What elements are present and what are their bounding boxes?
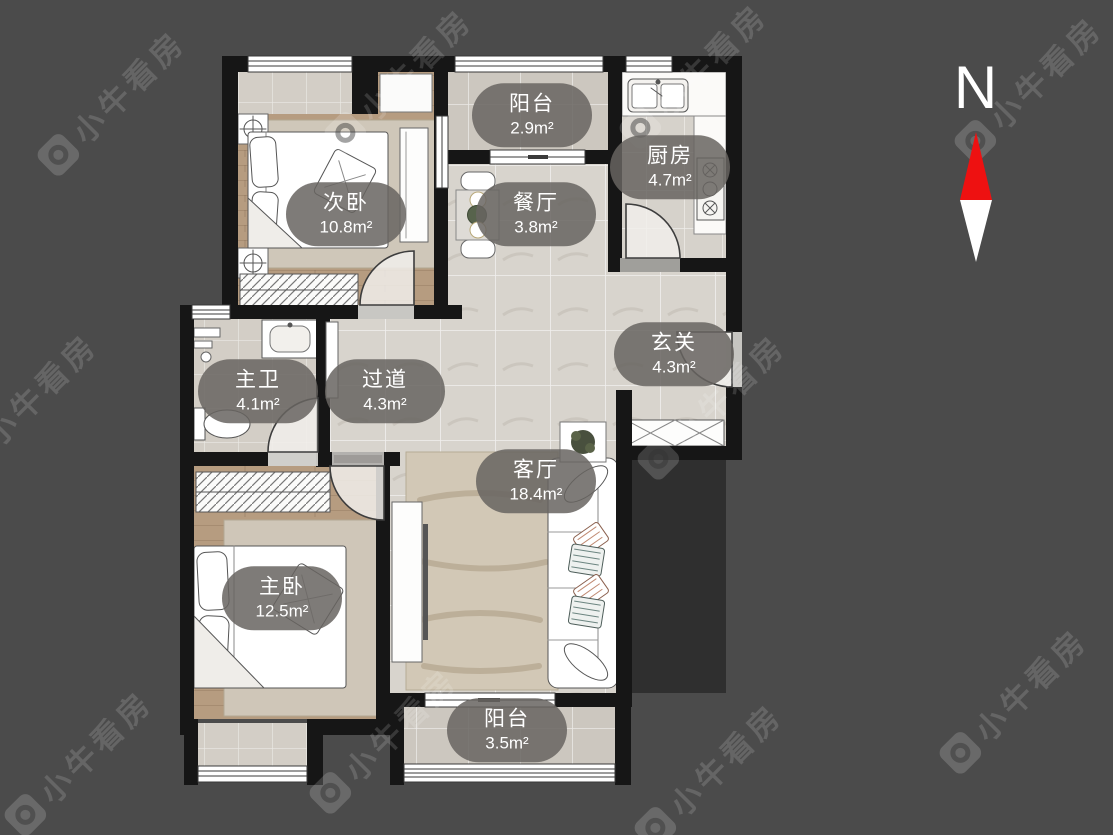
floor-plan-page: 小牛看房 小牛看房 小牛看房 小牛看房 小牛看房 小牛看房 小牛看房 小牛看房 …	[0, 0, 1113, 835]
door-threshold	[620, 258, 680, 272]
desk	[400, 128, 428, 242]
room-area: 4.3m²	[363, 394, 406, 415]
room-area: 3.8m²	[514, 217, 557, 238]
room-area: 4.7m²	[648, 170, 691, 191]
room-area: 4.3m²	[652, 357, 695, 378]
chair	[461, 240, 495, 258]
room-name: 主卫	[235, 367, 281, 393]
room-label-master-bedroom: 主卧 12.5m²	[222, 566, 342, 630]
room-label-entry: 玄关 4.3m²	[614, 322, 734, 386]
cabinet	[380, 74, 432, 112]
room-area: 12.5m²	[256, 601, 309, 622]
room-name: 次卧	[323, 190, 369, 216]
room-area: 3.5m²	[485, 733, 528, 754]
compass-arrow-icon	[958, 130, 994, 264]
room-label-south-balcony: 阳台 3.5m²	[447, 698, 567, 762]
master-bay-floor	[198, 723, 307, 767]
window	[248, 56, 352, 72]
room-name: 客厅	[513, 457, 559, 483]
window	[626, 56, 672, 72]
room-name: 过道	[362, 367, 408, 393]
window	[198, 766, 307, 782]
wardrobe	[240, 274, 358, 306]
room-area: 2.9m²	[510, 118, 553, 139]
wardrobe	[196, 472, 330, 512]
room-label-north-balcony: 阳台 2.9m²	[472, 83, 592, 147]
window	[192, 305, 230, 319]
window	[455, 56, 603, 72]
room-label-bathroom: 主卫 4.1m²	[198, 359, 318, 423]
tv-cabinet	[392, 502, 422, 662]
shoe-cabinet	[626, 420, 724, 446]
tv	[423, 524, 428, 640]
sink	[628, 79, 688, 112]
room-area: 4.1m²	[236, 394, 279, 415]
window	[436, 116, 448, 188]
window	[404, 764, 615, 782]
room-label-secondary-bedroom: 次卧 10.8m²	[286, 182, 406, 246]
outside-shaft-area	[632, 460, 726, 693]
sliding-door	[490, 150, 585, 164]
door-leaf	[334, 455, 382, 463]
room-name: 餐厅	[513, 190, 559, 216]
room-label-kitchen: 厨房 4.7m²	[610, 135, 730, 199]
room-label-living: 客厅 18.4m²	[476, 449, 596, 513]
room-name: 厨房	[647, 143, 693, 169]
room-name: 玄关	[651, 330, 697, 356]
room-area: 18.4m²	[510, 484, 563, 505]
door-threshold	[358, 305, 414, 319]
room-label-dining: 餐厅 3.8m²	[476, 182, 596, 246]
secondary-bedroom-bay-floor	[238, 72, 352, 114]
compass: N	[938, 58, 1013, 273]
room-name: 阳台	[509, 91, 555, 117]
room-label-hallway: 过道 4.3m²	[325, 359, 445, 423]
door-threshold	[268, 452, 318, 466]
room-name: 阳台	[484, 706, 530, 732]
room-area: 10.8m²	[320, 217, 373, 238]
room-name: 主卧	[259, 574, 305, 600]
compass-north-label: N	[954, 58, 997, 118]
